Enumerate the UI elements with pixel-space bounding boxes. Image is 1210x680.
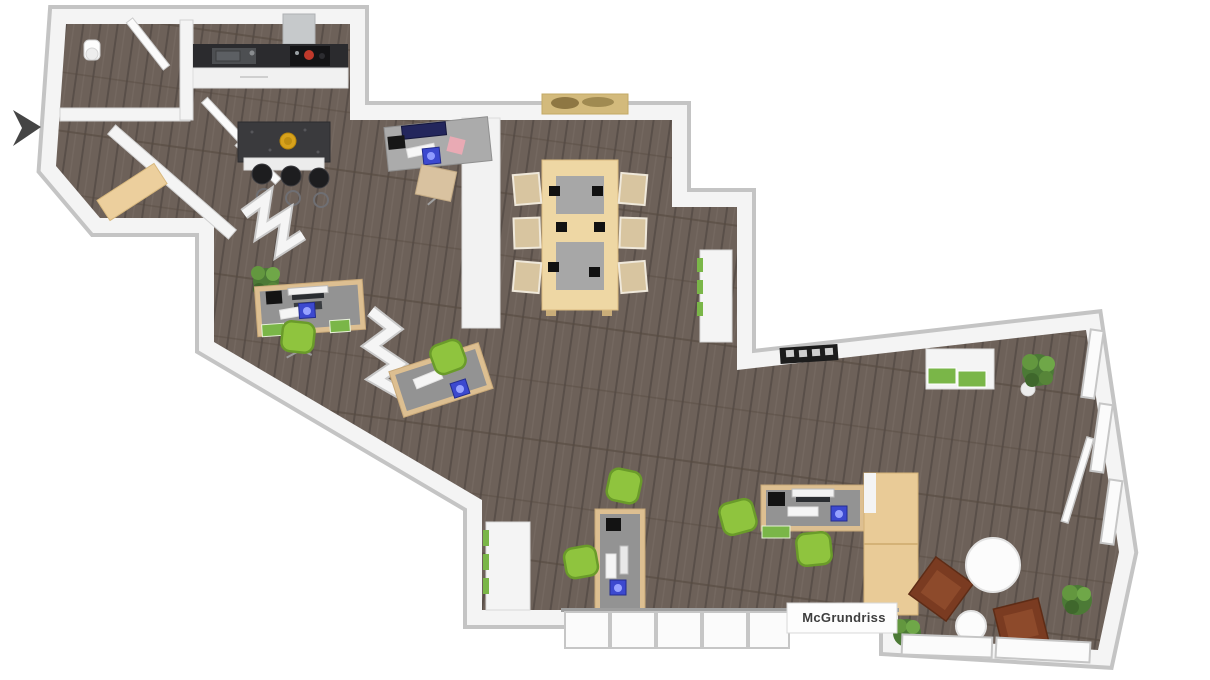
cabinet-bottom-left: [483, 522, 530, 610]
round-table-large: [966, 538, 1020, 592]
entrance-arrow: [13, 110, 41, 146]
sideboard-right: [926, 349, 994, 389]
floorplan-canvas: [0, 0, 1210, 680]
wall-artwork: [542, 94, 628, 114]
wall-cabinet-neck: [697, 250, 732, 342]
extractor-hood: [283, 14, 315, 44]
desk-horizontal: [761, 485, 865, 538]
kitchen-island: [238, 122, 330, 170]
office-chair-3: [605, 467, 643, 505]
floorplan-image: McGrundriss: [0, 0, 1210, 680]
office-chair-5: [795, 531, 832, 566]
toilet: [84, 40, 100, 60]
kitchen-counter: [193, 44, 348, 88]
watermark-label: McGrundriss: [792, 610, 896, 625]
plant-bottom-right: [1062, 585, 1092, 615]
conference-table: [542, 160, 618, 316]
office-chair-4: [563, 544, 600, 579]
desk-vertical: [595, 509, 645, 615]
